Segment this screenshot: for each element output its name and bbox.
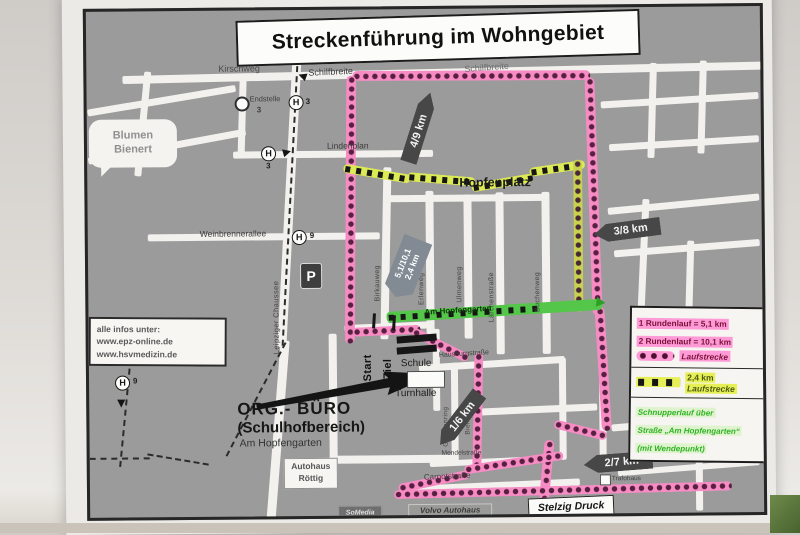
marker-text: 4/9 km xyxy=(407,113,429,149)
street-east-h1 xyxy=(601,92,759,109)
somedia-label: SoMedia xyxy=(346,509,375,516)
parking-letter: P xyxy=(306,268,315,284)
label-trafohaus: Trafohaus xyxy=(612,476,641,483)
stop-letter: H xyxy=(296,233,303,242)
legend-yellow-route-sample xyxy=(636,377,680,388)
map-title-text: Streckenführung im Wohngebiet xyxy=(271,21,604,55)
dashed-route-sw2 xyxy=(147,453,208,465)
volvo-line2: Graf Degenhagen xyxy=(409,515,491,521)
stop-letter: H xyxy=(119,379,126,388)
legend-divider xyxy=(631,396,767,399)
label-lindenplan: Lindenplan xyxy=(327,141,369,150)
somedia-box: SoMedia xyxy=(338,505,382,520)
street-diagonal-nw1 xyxy=(87,85,236,117)
legend-box: 1 Rundenlauf = 5,1 km 2 Rundenlauf = 10,… xyxy=(628,306,767,463)
autohaus-line1: Autohaus xyxy=(285,461,337,473)
street-buchenweg xyxy=(541,192,550,354)
volvo-line1: Volvo Autohaus xyxy=(409,505,491,515)
endstelle-circle-icon xyxy=(235,96,250,111)
label-endstelle: Endstelle xyxy=(250,95,281,103)
trafohaus-building xyxy=(600,474,611,485)
tram-stop-icon-left: H xyxy=(115,376,130,391)
blumen-line2: Bienert xyxy=(114,143,152,157)
street-laerchenstrasse xyxy=(495,192,504,354)
street-east-h2 xyxy=(609,135,759,151)
label-ziel: Ziel xyxy=(383,339,394,379)
label-start: Start xyxy=(363,335,374,381)
legend-yellow-km: 2,4 km xyxy=(685,372,716,382)
stop-letter: H xyxy=(265,149,272,158)
stelzig-label: Stelzig Druck xyxy=(538,499,605,514)
route-pink-left-vertical xyxy=(345,76,356,344)
marker-text: 3/8 km xyxy=(613,222,649,238)
label-weinbrennerallee: Weinbrennerallee xyxy=(200,229,267,238)
stop-number-weinbrenner: 9 xyxy=(310,232,315,240)
street-endstelle-vertical xyxy=(238,74,247,154)
tram-stop-icon-kirschweg: H xyxy=(289,95,304,110)
info-box: alle infos unter: www.epz-online.de www.… xyxy=(89,317,227,367)
volvo-autohaus-box: Volvo Autohaus Graf Degenhagen xyxy=(408,503,492,521)
stop-number-left: 9 xyxy=(133,377,138,385)
label-schule: Schule xyxy=(401,359,432,369)
org-buero-line2: (Schulhofbereich) xyxy=(237,419,365,435)
label-birkauweg: Birkauweg xyxy=(374,231,382,301)
route-pink-right-lower xyxy=(594,307,612,431)
blumen-line1: Blumen xyxy=(113,130,153,144)
wendepunkt-arrow-icon xyxy=(596,297,606,308)
tram-stop-icon-lindenplan: H xyxy=(261,146,276,161)
turnhalle-building xyxy=(407,371,445,388)
schule-building2 xyxy=(397,344,437,354)
street-mid-horizontal xyxy=(479,403,597,415)
stop-letter: H xyxy=(293,98,300,107)
stop-number-lindenplan: 3 xyxy=(266,162,271,170)
legend-pink-route-sample xyxy=(636,351,674,361)
label-hopfenplatz: Hopfenplatz xyxy=(459,176,531,189)
label-leipziger-chaussee: Leipziger Chaussee xyxy=(272,258,280,354)
tram-stop-icon-weinbrenner: H xyxy=(292,230,307,245)
label-schilfbreite-left: Schilfbreite xyxy=(308,67,353,78)
info-url1: www.epz-online.de xyxy=(97,335,219,348)
autohaus-line2: Röttig xyxy=(285,473,337,485)
direction-arrow-icon-left xyxy=(117,400,125,408)
label-carnotstrasse: Carnotstraße xyxy=(424,472,471,482)
photo-of-route-map: { "title": "Streckenführung im Wohngebie… xyxy=(0,0,800,533)
legend-round1: 1 Rundenlauf = 5,1 km xyxy=(637,317,729,329)
info-url2: www.hsvmedizin.de xyxy=(97,348,219,361)
endstelle-line-number: 3 xyxy=(257,106,262,114)
parking-sign: P xyxy=(300,263,322,289)
marker-3-8-km: 3/8 km xyxy=(593,217,662,244)
street-east-v3 xyxy=(637,199,649,315)
printed-page: Streckenführung im Wohngebiet Kirschweg … xyxy=(62,0,777,535)
label-mendelstrasse: Mendelstraße xyxy=(442,450,482,457)
legend-green-line3: (mit Wendepunkt) xyxy=(635,443,707,454)
legend-green-line1: Schnupperlauf über xyxy=(636,407,716,418)
stelzig-druck-box: Stelzig Druck xyxy=(528,495,615,521)
street-east-diag xyxy=(608,193,760,215)
legend-pink-label: Laufstrecke xyxy=(679,350,730,362)
map-canvas: Streckenführung im Wohngebiet Kirschweg … xyxy=(83,3,767,521)
blumen-bienert-bubble: Blumen Bienert xyxy=(89,119,177,168)
photo-table-edge xyxy=(0,523,800,533)
route-pink-right-vertical xyxy=(584,77,602,315)
autohaus-roettig-box: Autohaus Röttig xyxy=(284,458,338,489)
stop-number-kirschweg: 3 xyxy=(306,98,311,106)
legend-divider xyxy=(631,366,767,369)
legend-green-line2: Straße „Am Hopfengarten“ xyxy=(635,425,741,436)
photo-grass-corner xyxy=(770,495,800,533)
label-buchenweg: Buchenweg xyxy=(534,242,542,312)
label-turnhalle: Turnhalle xyxy=(395,389,436,399)
street-grid-connector xyxy=(383,194,545,202)
map-title: Streckenführung im Wohngebiet xyxy=(235,9,640,67)
info-line1: alle infos unter: xyxy=(97,323,219,336)
label-ulmenweg: Ulmenweg xyxy=(456,239,464,303)
route-inner-right-vertical xyxy=(573,160,583,312)
legend-yellow-label: Laufstrecke xyxy=(685,383,737,394)
org-buero-line3: Am Hopfengarten xyxy=(240,438,322,449)
legend-round2: 2 Rundenlauf = 10,1 km xyxy=(637,335,734,347)
